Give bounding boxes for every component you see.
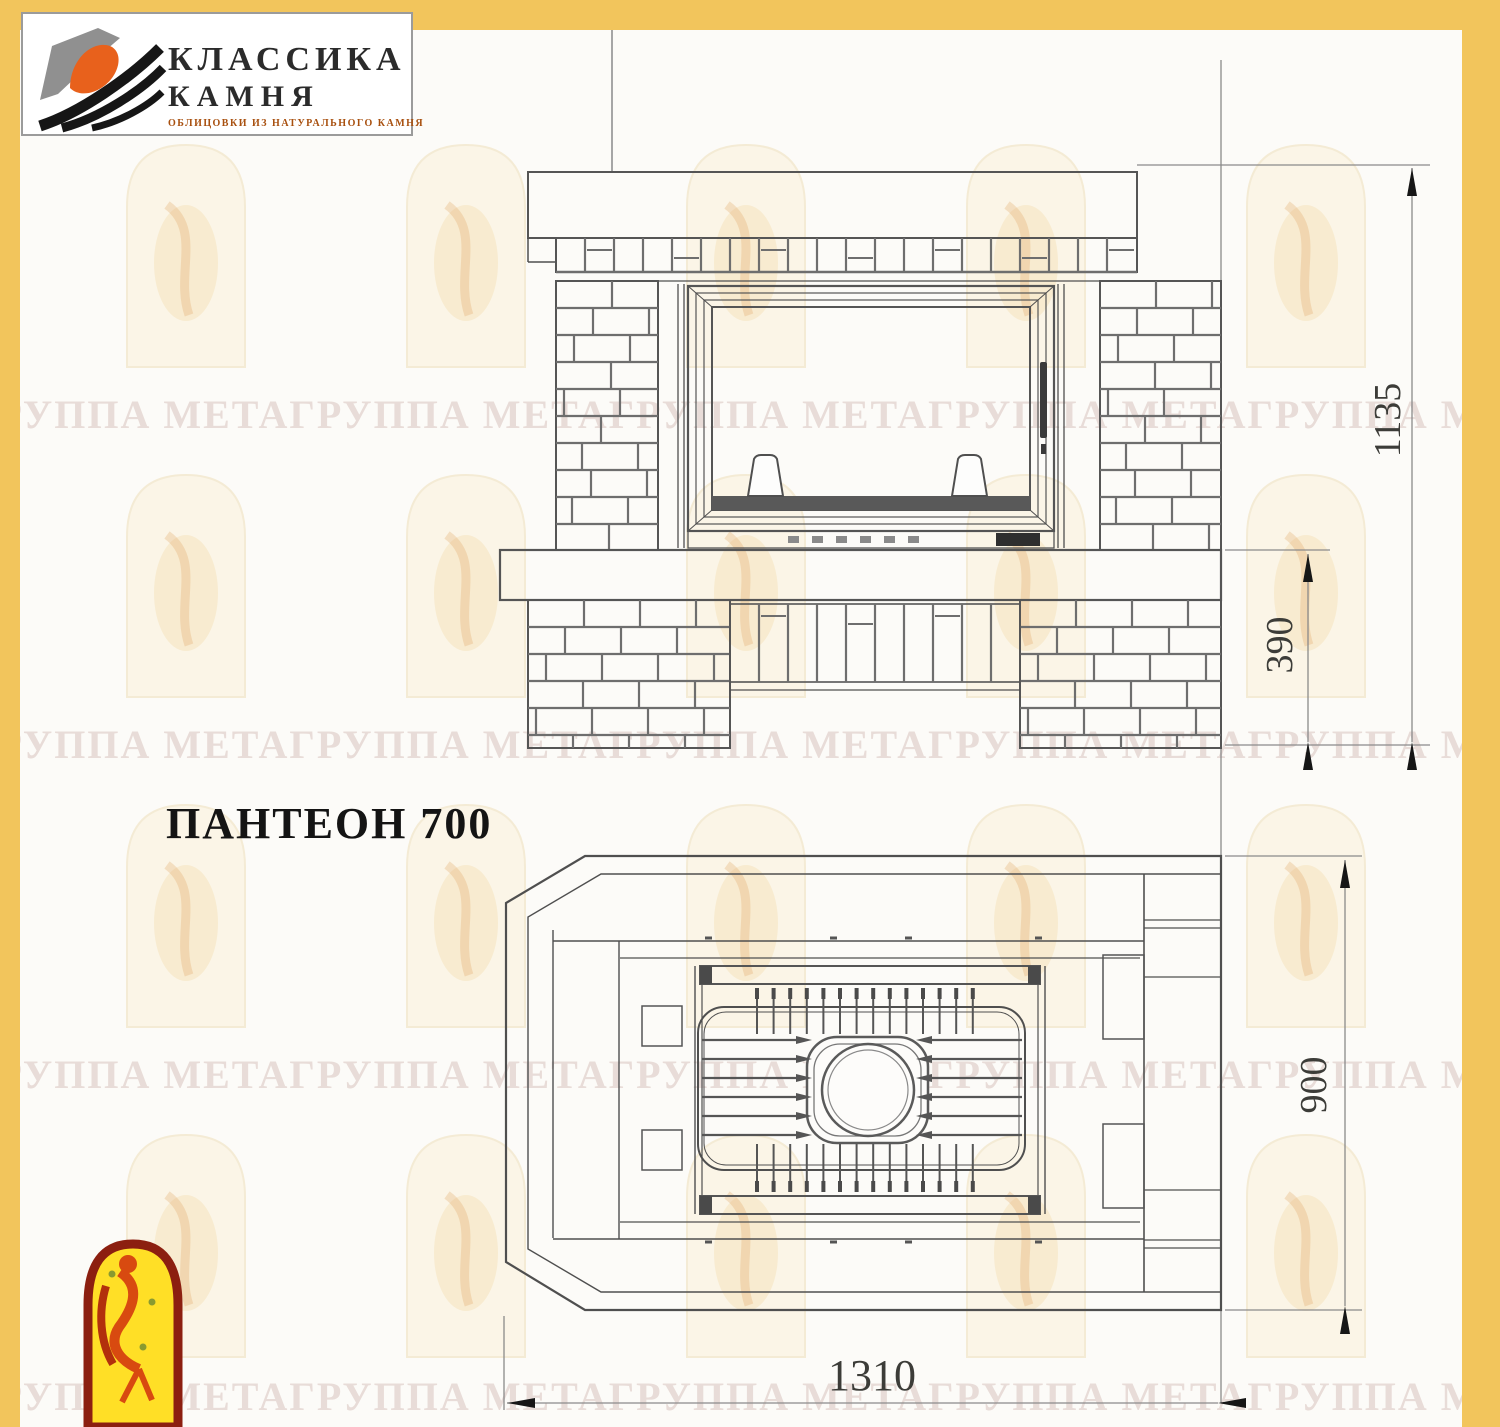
dim-plinth-height-label: 390 [1259,617,1301,674]
watermark-text: ГРУППА МЕТАГРУППА МЕТАГРУППА МЕТАГРУППА … [0,1374,1500,1419]
drawing-canvas: ГРУППА МЕТАГРУППА МЕТАГРУППА МЕТАГРУППА … [0,0,1500,1427]
dim-overall-height-label: 1135 [1367,383,1409,458]
page: ГРУППА МЕТАГРУППА МЕТАГРУППА МЕТАГРУППА … [0,0,1500,1427]
logo-subtitle: ОБЛИЦОВКИ ИЗ НАТУРАЛЬНОГО КАМНЯ [168,118,424,129]
border-left [0,0,20,1427]
company-logo: КЛАССИКА КАМНЯ ОБЛИЦОВКИ ИЗ НАТУРАЛЬНОГО… [22,13,424,135]
dim-width-label: 1310 [828,1351,916,1400]
model-title: ПАНТЕОН 700 [166,799,492,848]
logo-text-line2: КАМНЯ [168,80,320,113]
logo-text-line1: КЛАССИКА [168,41,406,78]
border-right [1462,0,1500,1427]
watermark-text: ГРУППА МЕТАГРУППА МЕТАГРУППА МЕТАГРУППА … [0,392,1500,437]
dim-depth-label: 900 [1293,1057,1335,1114]
stamp-logo [88,1244,178,1427]
